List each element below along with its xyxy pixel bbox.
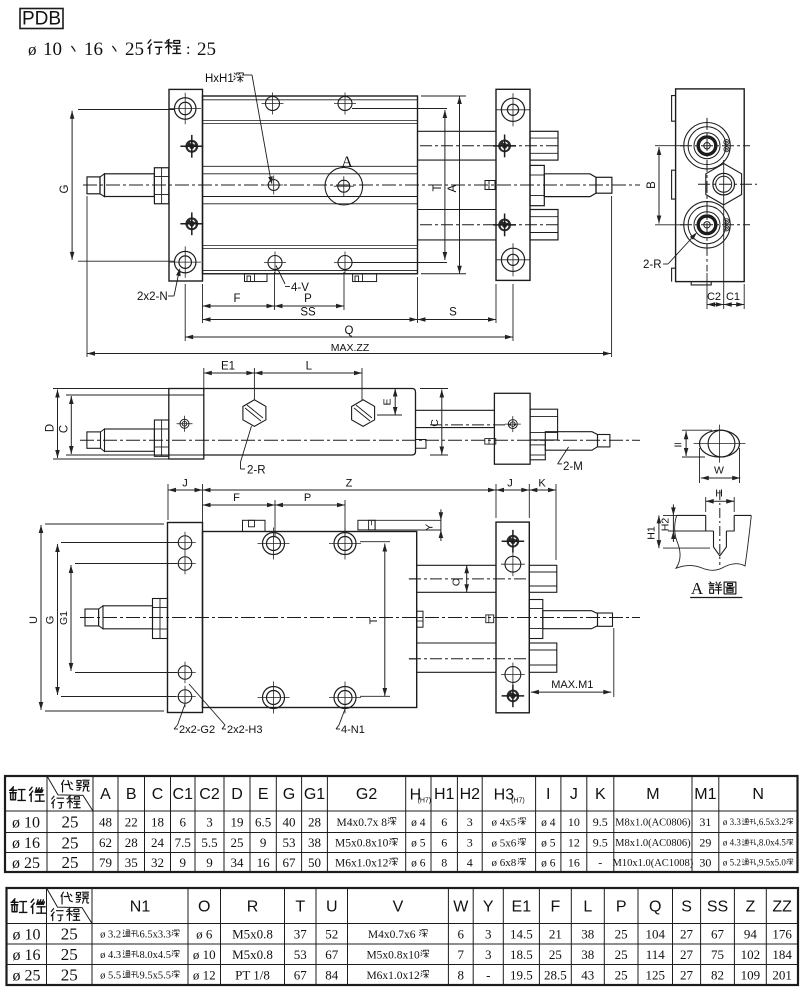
svg-text:ø 12: ø 12 — [193, 967, 216, 982]
svg-text:84: 84 — [325, 967, 339, 982]
svg-text:C: C — [152, 786, 164, 803]
svg-text:53: 53 — [294, 947, 307, 962]
svg-text:Y: Y — [483, 898, 494, 915]
svg-text:O: O — [451, 578, 463, 586]
svg-text:E: E — [382, 398, 394, 405]
svg-text:G1: G1 — [304, 786, 325, 803]
svg-text:M1: M1 — [694, 786, 716, 803]
svg-text:U: U — [28, 616, 40, 624]
svg-text:2-R: 2-R — [247, 465, 266, 477]
svg-text:W: W — [453, 898, 469, 915]
svg-text:28: 28 — [308, 814, 321, 829]
svg-text:27: 27 — [680, 967, 694, 982]
svg-text:43: 43 — [581, 967, 594, 982]
svg-text:M5x0.8: M5x0.8 — [232, 926, 273, 941]
svg-text:C1: C1 — [173, 786, 194, 803]
svg-text:3: 3 — [485, 926, 492, 941]
svg-text:J: J — [507, 478, 513, 490]
svg-text:25: 25 — [125, 39, 144, 60]
svg-text:25: 25 — [61, 925, 78, 944]
svg-text:ø 10: ø 10 — [13, 926, 41, 943]
svg-text:ø: ø — [28, 40, 37, 59]
svg-text:25: 25 — [197, 39, 216, 60]
svg-text:M6x1.0x12: M6x1.0x12 — [335, 857, 389, 869]
svg-text:C: C — [59, 425, 71, 433]
svg-text:25: 25 — [61, 966, 78, 985]
svg-text:P: P — [304, 492, 311, 504]
svg-text:Q: Q — [649, 898, 661, 915]
svg-text:,8.0x4.5: ,8.0x4.5 — [757, 838, 787, 848]
svg-text:4: 4 — [467, 855, 473, 869]
svg-text:32: 32 — [151, 855, 164, 870]
svg-text:(H7): (H7) — [511, 798, 525, 805]
svg-text:94: 94 — [744, 926, 758, 941]
svg-text:16: 16 — [84, 39, 103, 60]
svg-text:B: B — [126, 786, 137, 803]
svg-text:N1: N1 — [130, 898, 151, 915]
svg-text:176: 176 — [772, 926, 792, 941]
svg-text:25: 25 — [615, 967, 628, 982]
svg-text:ø 4: ø 4 — [541, 817, 556, 829]
svg-text:ø 6x8: ø 6x8 — [492, 857, 517, 869]
svg-text:,9.5x5.0: ,9.5x5.0 — [757, 857, 787, 867]
svg-text:ø 4x5: ø 4x5 — [492, 817, 517, 829]
svg-text:R: R — [247, 898, 259, 915]
svg-text:T: T — [295, 898, 305, 915]
svg-text:3: 3 — [467, 815, 473, 829]
svg-text:ø 3.2: ø 3.2 — [100, 929, 121, 940]
svg-text:Z: Z — [745, 898, 755, 915]
svg-text:29: 29 — [699, 836, 711, 850]
svg-text:31: 31 — [699, 815, 711, 829]
svg-text:50: 50 — [308, 855, 321, 870]
svg-text:38: 38 — [308, 835, 321, 850]
svg-text:MAX.M1: MAX.M1 — [551, 679, 593, 691]
svg-text:4-N1: 4-N1 — [341, 724, 365, 736]
svg-text:3: 3 — [485, 947, 492, 962]
svg-text:ø 6: ø 6 — [196, 926, 213, 941]
svg-text:25: 25 — [615, 926, 628, 941]
svg-text:22: 22 — [125, 814, 138, 829]
svg-text:67: 67 — [711, 926, 725, 941]
svg-text:D: D — [45, 424, 57, 432]
svg-text:52: 52 — [325, 926, 338, 941]
svg-text:M5x0.8x10: M5x0.8x10 — [335, 838, 389, 850]
svg-text:125: 125 — [646, 967, 666, 982]
svg-text:6: 6 — [180, 814, 187, 829]
svg-text:109: 109 — [741, 967, 761, 982]
svg-text:H1: H1 — [646, 526, 658, 540]
svg-text:10: 10 — [568, 815, 580, 829]
svg-text:ZZ: ZZ — [772, 898, 792, 915]
svg-text:(H7): (H7) — [418, 798, 432, 805]
svg-text:J: J — [570, 786, 578, 803]
svg-text:A: A — [447, 184, 459, 192]
svg-text:S: S — [681, 898, 692, 915]
svg-text:37: 37 — [294, 926, 308, 941]
svg-text:6: 6 — [441, 815, 447, 829]
svg-text:67: 67 — [325, 947, 339, 962]
svg-text:67: 67 — [282, 855, 296, 870]
svg-text:30: 30 — [699, 855, 711, 869]
svg-text:G2: G2 — [356, 786, 377, 803]
svg-text:ø 4.3: ø 4.3 — [100, 950, 121, 961]
svg-text:C2: C2 — [199, 786, 220, 803]
svg-text:2-R: 2-R — [643, 259, 662, 271]
svg-text:25: 25 — [62, 833, 79, 852]
svg-text:ø 10: ø 10 — [12, 814, 40, 831]
svg-text:8: 8 — [441, 855, 447, 869]
svg-text:N: N — [752, 786, 764, 803]
svg-text:Q: Q — [345, 325, 354, 337]
svg-text:F: F — [233, 293, 240, 305]
svg-text:G: G — [283, 786, 295, 803]
svg-text:5.5: 5.5 — [201, 835, 217, 850]
svg-text:25: 25 — [62, 853, 79, 872]
svg-text:M5x0.8: M5x0.8 — [232, 947, 273, 962]
svg-text:48: 48 — [99, 814, 112, 829]
svg-text:A: A — [341, 154, 353, 171]
svg-text:16: 16 — [257, 855, 271, 870]
svg-text:K: K — [538, 478, 546, 490]
svg-text:ø 5: ø 5 — [411, 838, 426, 850]
svg-text::: : — [186, 41, 190, 58]
svg-text:ø 5: ø 5 — [541, 838, 556, 850]
svg-text:V: V — [393, 898, 404, 915]
svg-text:9: 9 — [260, 835, 267, 850]
svg-text:F: F — [233, 492, 240, 504]
svg-text:38: 38 — [581, 947, 594, 962]
svg-text:25: 25 — [61, 945, 78, 964]
svg-text:9.5: 9.5 — [593, 836, 608, 850]
svg-text:A: A — [100, 786, 111, 803]
svg-text:114: 114 — [646, 947, 666, 962]
svg-text:9.5x5.5: 9.5x5.5 — [139, 970, 171, 981]
svg-text:16: 16 — [568, 855, 580, 869]
svg-text:A: A — [691, 579, 704, 598]
svg-text:79: 79 — [99, 855, 112, 870]
svg-text:2x2-N: 2x2-N — [137, 291, 168, 303]
svg-text:27: 27 — [680, 926, 694, 941]
svg-text:H2: H2 — [460, 786, 481, 803]
svg-text:,6.5x3.2: ,6.5x3.2 — [757, 817, 786, 827]
svg-text:C: C — [429, 419, 441, 427]
svg-text:M5x0.8x10: M5x0.8x10 — [366, 949, 420, 961]
svg-text:18.5: 18.5 — [510, 947, 533, 962]
svg-text:7: 7 — [458, 947, 465, 962]
svg-text:25: 25 — [615, 947, 628, 962]
svg-text:E1: E1 — [512, 898, 532, 915]
svg-text:28: 28 — [125, 835, 138, 850]
svg-text:ø 5.5: ø 5.5 — [100, 970, 121, 981]
svg-text:12: 12 — [568, 836, 580, 850]
svg-text:ø 4: ø 4 — [411, 817, 426, 829]
svg-text:M4x0.7x 8: M4x0.7x 8 — [336, 817, 387, 829]
svg-text:SS: SS — [707, 898, 728, 915]
svg-text:H: H — [715, 487, 723, 499]
svg-text:J: J — [182, 478, 188, 490]
svg-text:201: 201 — [772, 967, 792, 982]
svg-text:3: 3 — [467, 836, 473, 850]
svg-text:ø 4.3: ø 4.3 — [723, 838, 742, 848]
svg-text:67: 67 — [294, 967, 308, 982]
svg-text:I: I — [546, 786, 550, 803]
svg-text:40: 40 — [282, 814, 295, 829]
svg-text:14.5: 14.5 — [510, 926, 533, 941]
svg-text:ø 25: ø 25 — [13, 967, 41, 984]
svg-text:ø 6: ø 6 — [411, 857, 426, 869]
svg-text:53: 53 — [282, 835, 295, 850]
svg-text:25: 25 — [549, 947, 562, 962]
svg-text:M10x1.0(AC1008): M10x1.0(AC1008) — [613, 858, 694, 869]
svg-text:E1: E1 — [221, 360, 235, 372]
svg-text:G1: G1 — [58, 611, 70, 625]
svg-text:ø 10: ø 10 — [193, 947, 216, 962]
svg-text:ø 6: ø 6 — [541, 857, 556, 869]
svg-text:ø 25: ø 25 — [12, 855, 40, 872]
svg-text:O: O — [198, 898, 210, 915]
svg-text:28.5: 28.5 — [544, 967, 567, 982]
svg-text:24: 24 — [151, 835, 165, 850]
svg-text:25: 25 — [62, 813, 79, 832]
svg-text:G: G — [45, 616, 57, 625]
svg-text:184: 184 — [772, 947, 792, 962]
svg-text:104: 104 — [646, 926, 666, 941]
svg-text:27: 27 — [680, 947, 694, 962]
svg-text:-: - — [486, 967, 490, 982]
svg-text:21: 21 — [549, 926, 562, 941]
svg-text:7.5: 7.5 — [175, 835, 191, 850]
svg-text:T: T — [432, 184, 444, 191]
svg-text:ø 16: ø 16 — [13, 947, 41, 964]
svg-text:6: 6 — [441, 836, 447, 850]
svg-text:-: - — [598, 855, 602, 869]
svg-text:K: K — [595, 786, 606, 803]
svg-text:25: 25 — [231, 835, 244, 850]
svg-text:PDB: PDB — [22, 9, 61, 30]
svg-text:2x2-H3: 2x2-H3 — [227, 724, 262, 736]
svg-text:PT 1/8: PT 1/8 — [235, 967, 270, 982]
svg-text:3: 3 — [206, 814, 213, 829]
svg-text:T: T — [368, 617, 380, 624]
svg-text:2x2-G2: 2x2-G2 — [179, 724, 215, 736]
svg-text:19.5: 19.5 — [510, 967, 533, 982]
svg-text:P: P — [616, 898, 627, 915]
svg-text:MAX.ZZ: MAX.ZZ — [331, 342, 370, 354]
svg-text:9: 9 — [206, 855, 213, 870]
svg-text:SS: SS — [300, 307, 316, 319]
svg-text:E: E — [258, 786, 269, 803]
svg-text:38: 38 — [581, 926, 594, 941]
svg-text:M: M — [646, 786, 659, 803]
svg-text:M6x1.0x12: M6x1.0x12 — [366, 970, 420, 982]
svg-text:6.5x3.3: 6.5x3.3 — [139, 929, 171, 940]
svg-text:D: D — [231, 786, 243, 803]
svg-text:W: W — [714, 464, 724, 476]
svg-text:ø 3.3: ø 3.3 — [723, 817, 742, 827]
svg-text:H2: H2 — [660, 518, 672, 532]
svg-text:U: U — [326, 898, 338, 915]
svg-text:6: 6 — [458, 926, 465, 941]
svg-text:S: S — [449, 307, 457, 319]
svg-text:6.5: 6.5 — [255, 814, 271, 829]
svg-text:M8x1.0(AC0806): M8x1.0(AC0806) — [615, 817, 691, 828]
svg-text:9: 9 — [180, 855, 187, 870]
svg-text:H1: H1 — [434, 786, 455, 803]
svg-text:75: 75 — [711, 947, 724, 962]
svg-text:P: P — [304, 293, 312, 305]
svg-text:ø 16: ø 16 — [12, 835, 40, 852]
svg-text:M8x1.0(AC0806): M8x1.0(AC0806) — [615, 838, 691, 849]
svg-text:10: 10 — [43, 39, 62, 60]
svg-text:G: G — [59, 184, 71, 193]
svg-text:18: 18 — [151, 814, 164, 829]
svg-text:8.0x4.5: 8.0x4.5 — [139, 950, 171, 961]
svg-text:L: L — [583, 898, 592, 915]
svg-text:8: 8 — [458, 967, 465, 982]
svg-text:M4x0.7x6: M4x0.7x6 — [368, 929, 416, 941]
svg-text:I: I — [673, 445, 685, 448]
svg-text:F: F — [550, 898, 560, 915]
svg-text:34: 34 — [231, 855, 245, 870]
svg-text:2-M: 2-M — [563, 461, 583, 473]
svg-text:L: L — [306, 360, 313, 372]
svg-text:9.5: 9.5 — [593, 815, 608, 829]
svg-text:ø 5x6: ø 5x6 — [492, 837, 517, 849]
svg-text:ø 5.2: ø 5.2 — [723, 857, 741, 867]
svg-text:HxH1: HxH1 — [205, 73, 234, 85]
svg-text:62: 62 — [99, 835, 112, 850]
svg-text:Y: Y — [424, 524, 436, 531]
svg-text:82: 82 — [711, 967, 724, 982]
svg-text:19: 19 — [231, 814, 244, 829]
svg-text:102: 102 — [741, 947, 761, 962]
svg-text:Z: Z — [346, 478, 353, 490]
svg-text:C1: C1 — [726, 291, 740, 303]
svg-text:C2: C2 — [707, 291, 721, 303]
svg-text:35: 35 — [125, 855, 138, 870]
svg-text:B: B — [646, 181, 658, 189]
